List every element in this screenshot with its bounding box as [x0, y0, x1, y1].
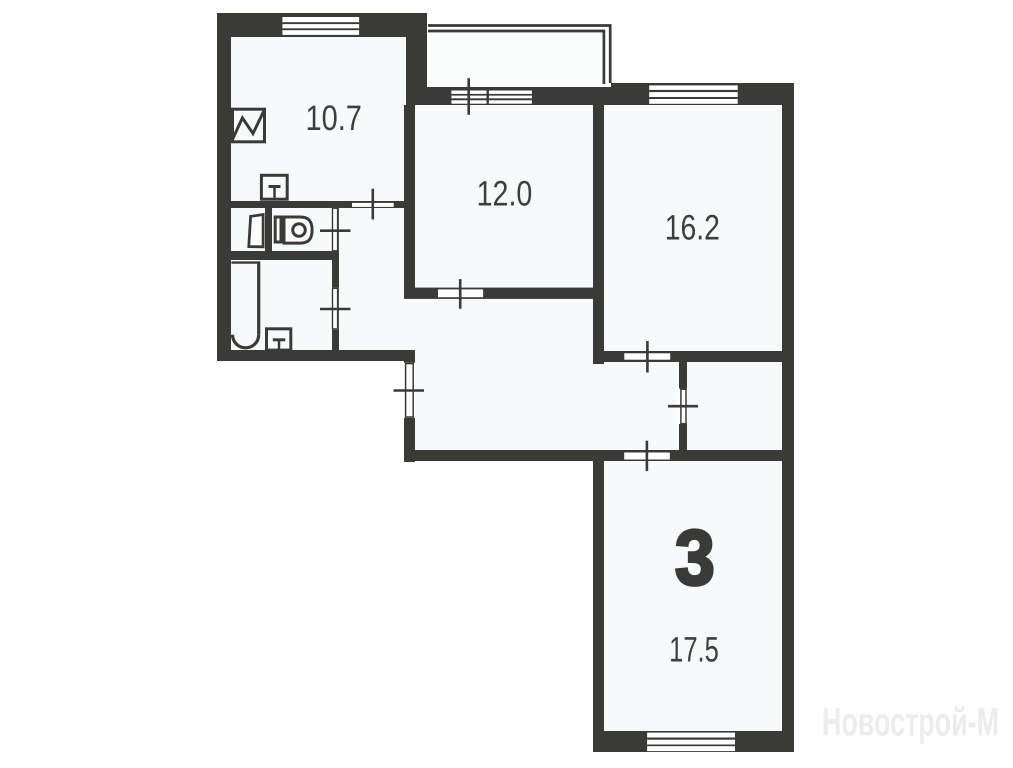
svg-text:10.7: 10.7	[306, 98, 362, 138]
svg-text:12.0: 12.0	[477, 174, 533, 214]
svg-text:17.5: 17.5	[669, 630, 719, 670]
svg-text:Новострой-М: Новострой-М	[822, 701, 999, 745]
svg-text:16.2: 16.2	[665, 207, 720, 247]
svg-text:3: 3	[675, 513, 715, 601]
